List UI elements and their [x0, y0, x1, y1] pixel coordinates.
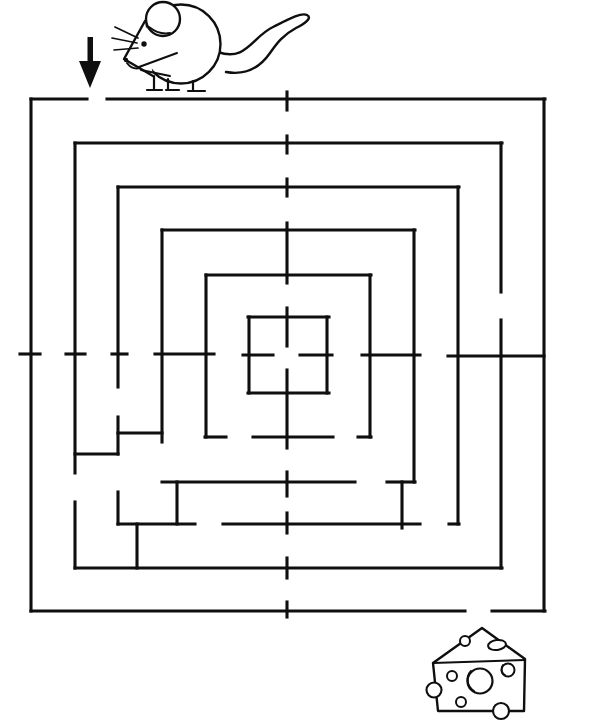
- cheese-hole: [456, 697, 466, 707]
- cheese-icon: [427, 628, 526, 719]
- cheese-hole: [447, 671, 457, 681]
- down-arrow-icon: [79, 37, 101, 88]
- cheese-bite: [460, 636, 470, 646]
- mouse-eye: [141, 41, 146, 46]
- cheese-bite: [427, 683, 442, 698]
- maze-canvas: [0, 0, 600, 724]
- maze-page: [0, 0, 600, 724]
- cheese-bite: [493, 703, 509, 719]
- maze-walls: [20, 92, 545, 617]
- mouse-tail: [218, 14, 309, 73]
- mouse-icon: [112, 2, 309, 91]
- mouse-ear: [146, 2, 180, 36]
- mouse-nose: [124, 58, 128, 62]
